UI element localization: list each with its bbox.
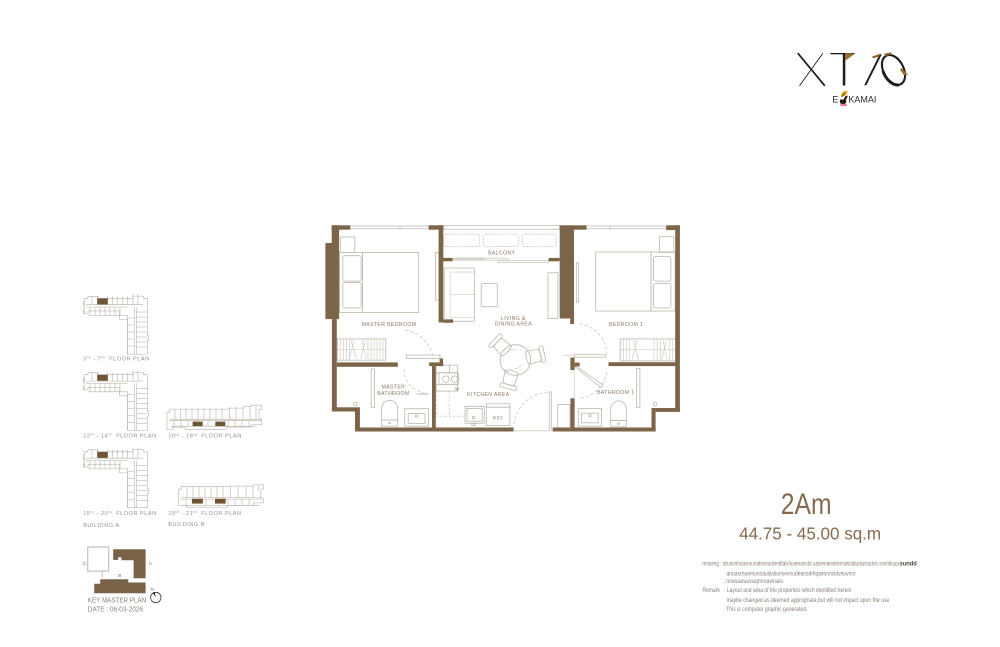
- svg-text:sundd: sundd: [900, 562, 918, 568]
- svg-text:3rd - 7th FLOOR PLAN: 3rd - 7th FLOOR PLAN: [83, 356, 149, 363]
- svg-text:REF: REF: [493, 415, 504, 421]
- svg-text:12th - 14th FLOOR PLAN: 12th - 14th FLOOR PLAN: [83, 433, 156, 440]
- svg-text:A: A: [149, 561, 152, 566]
- svg-text:MASTER BEDROOM: MASTER BEDROOM: [362, 322, 417, 328]
- svg-text:: This is computer graphic gen: : This is computer graphic generated.: [723, 607, 807, 613]
- svg-text:B: B: [118, 573, 121, 578]
- svg-text:W: W: [455, 387, 460, 392]
- svg-text:anuasrnuemunsaulasliunsevnudea: anuasrnuemunsaulasliunsevnudeansdrfiqaes…: [727, 572, 856, 578]
- svg-text:BUILDING B: BUILDING B: [168, 522, 205, 528]
- svg-text:KITCHEN AREA: KITCHEN AREA: [467, 392, 509, 398]
- svg-text:E: E: [832, 94, 838, 104]
- svg-text:MASTER: MASTER: [382, 385, 406, 391]
- svg-text:N: N: [151, 588, 154, 592]
- svg-text:DINING AREA: DINING AREA: [495, 322, 532, 328]
- svg-text:rintaimg : drunvnbuasrsunatnss: rintaimg : drunvnbuasrsunatnssudviedtalv…: [702, 562, 899, 568]
- svg-text:44.75 - 45.00 sq.m: 44.75 - 45.00 sq.m: [739, 524, 881, 544]
- svg-text:BALCONY: BALCONY: [488, 251, 515, 257]
- svg-text:19th - 21st FLOOR PLAN: 19th - 21st FLOOR PLAN: [168, 510, 241, 517]
- svg-text:KEY MASTER PLAN: KEY MASTER PLAN: [88, 597, 146, 604]
- svg-text:BEDROOM 1: BEDROOM 1: [609, 322, 643, 328]
- svg-text:Remark : Layout and area of: Remark : Layout and area of the properti…: [702, 588, 851, 594]
- svg-text:2Am: 2Am: [781, 488, 832, 521]
- svg-text:maybe changed as deemed approp: maybe changed as deemed appropriate,but …: [727, 598, 890, 604]
- svg-text:DATE : 06-03-2026: DATE : 06-03-2026: [88, 607, 143, 614]
- svg-text:BATHROOM: BATHROOM: [377, 391, 409, 397]
- svg-text:10th - 18th FLOOR PLAN: 10th - 18th FLOOR PLAN: [168, 433, 241, 440]
- svg-text:BUILDING A: BUILDING A: [83, 523, 119, 529]
- svg-text:15th - 20th FLOOR PLAN: 15th - 20th FLOOR PLAN: [83, 511, 156, 518]
- svg-text:: nnwuaruuvaqnnnaviraes: : nnwuaruuvaqnnnaviraes: [723, 579, 783, 585]
- svg-text:KAMAI: KAMAI: [848, 94, 876, 104]
- svg-text:BATHROOM 1: BATHROOM 1: [597, 390, 634, 396]
